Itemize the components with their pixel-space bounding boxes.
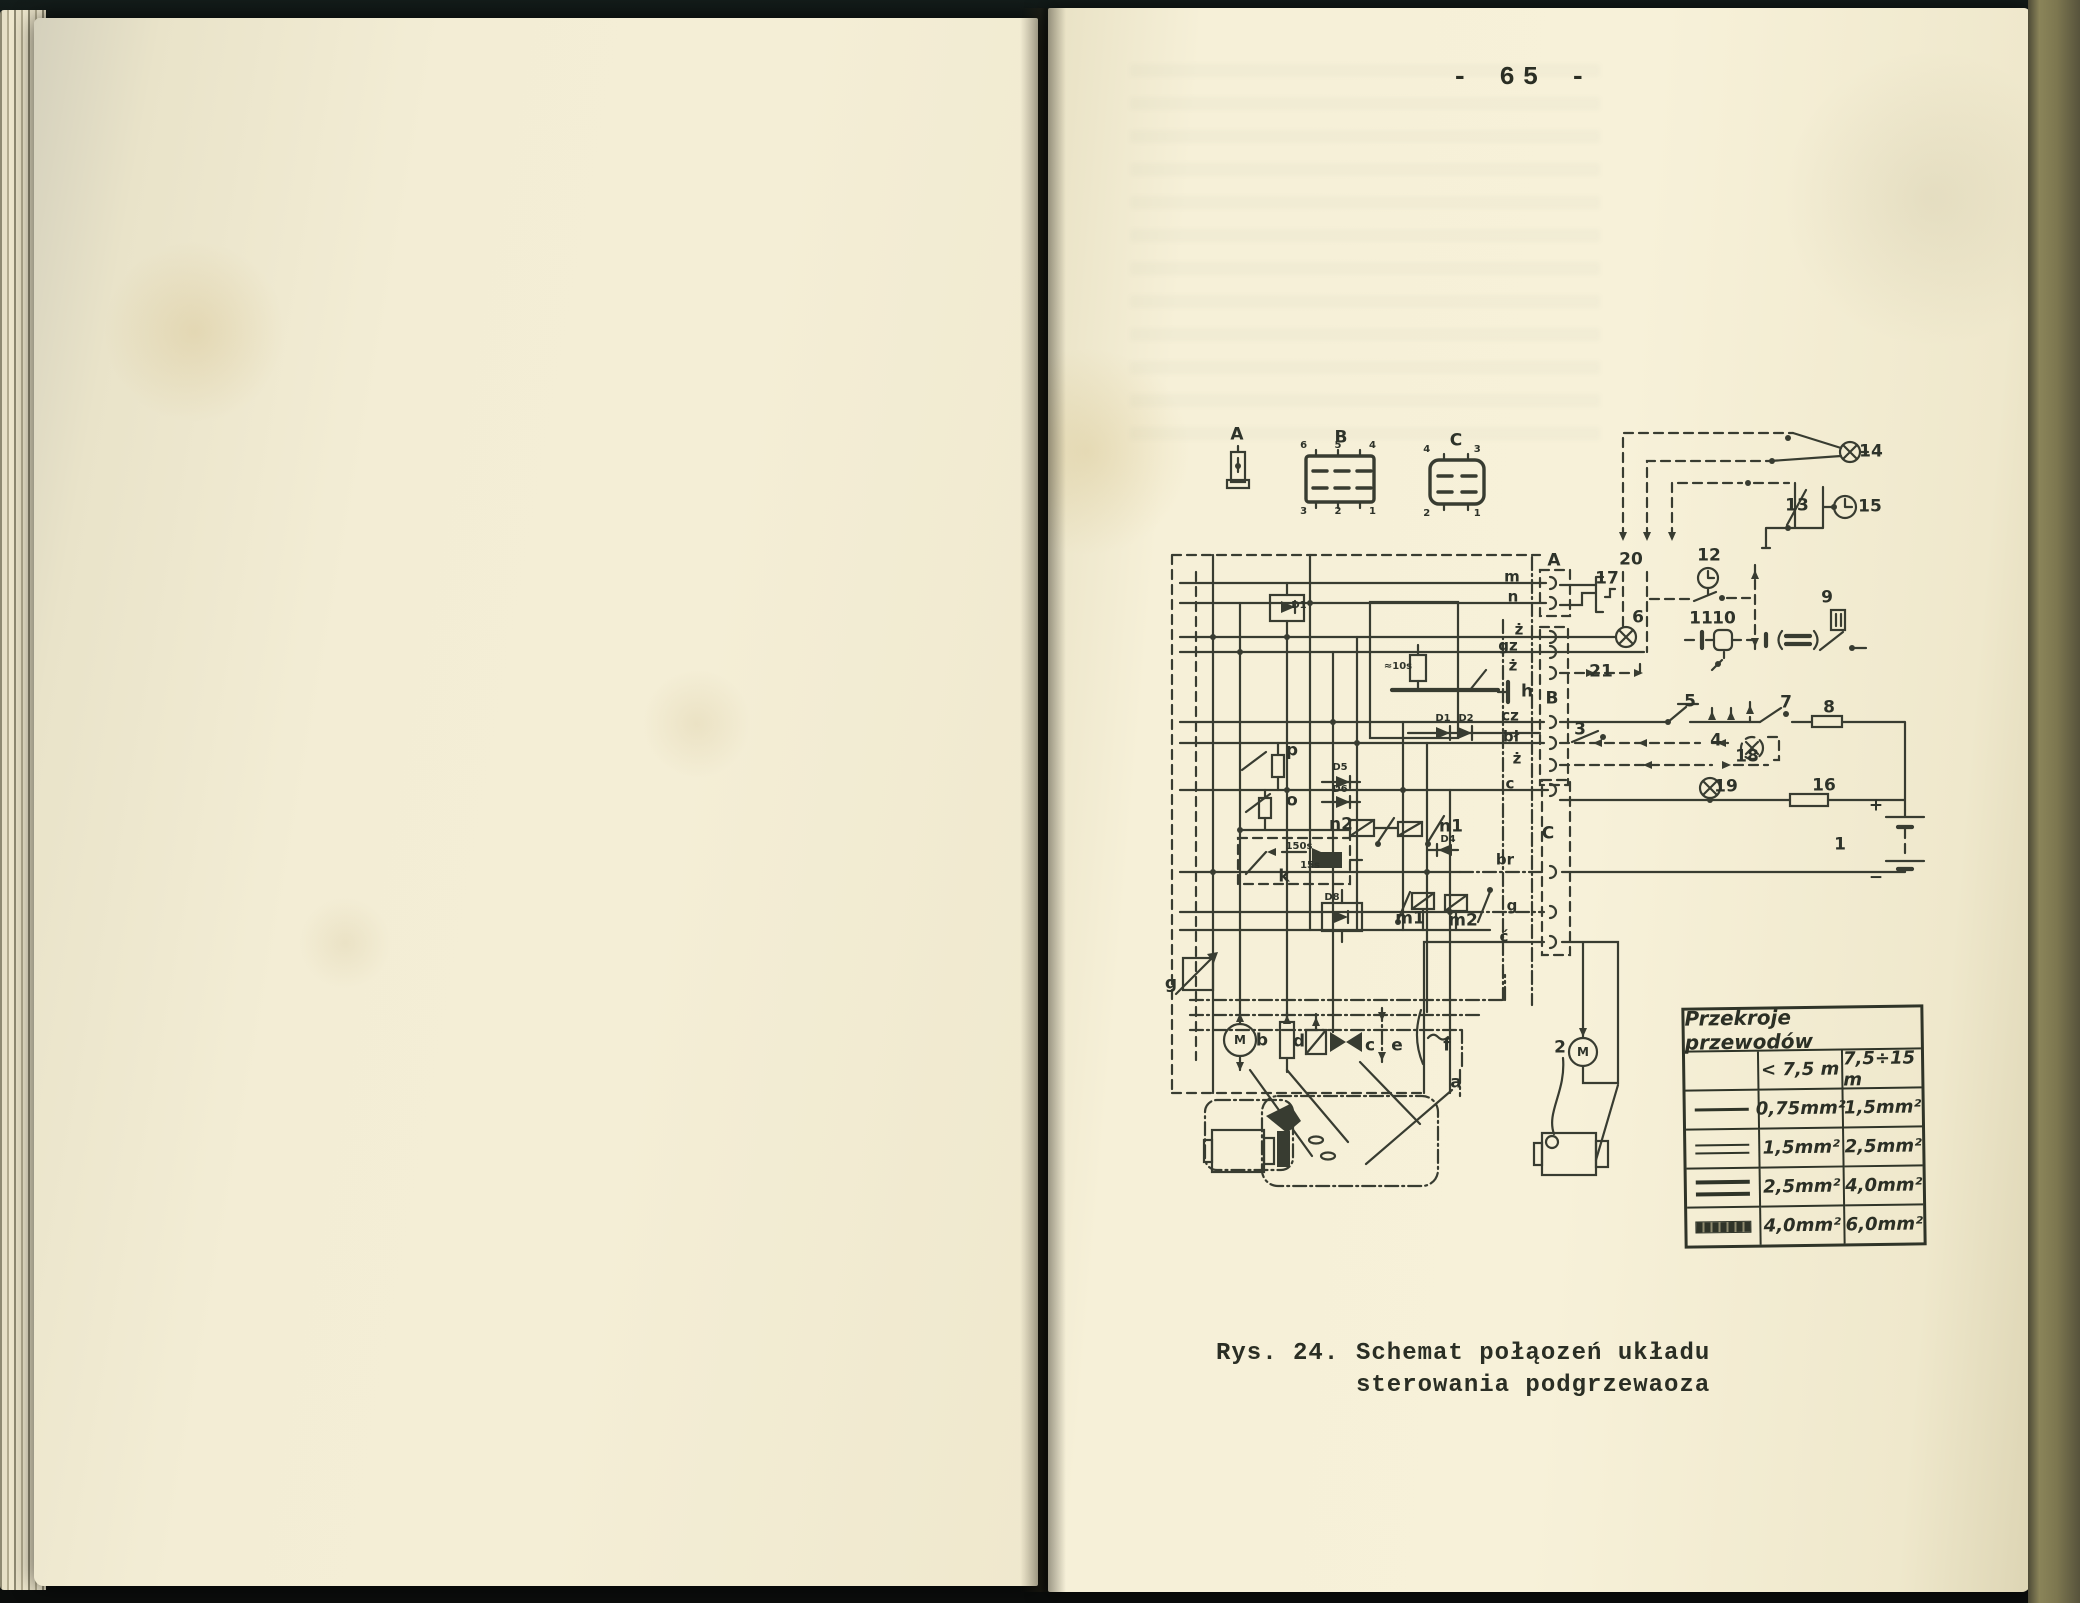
label-p: p <box>1286 743 1298 760</box>
label-switch-5: 5 <box>1684 694 1696 711</box>
label-20: 20 <box>1619 552 1643 569</box>
book-cover-edge <box>2028 0 2080 1603</box>
wire-label-g: g <box>1507 899 1518 914</box>
motor-b-letter: M <box>1234 1034 1246 1046</box>
wire-table-corner-cell <box>1685 1052 1760 1092</box>
table-row <box>1686 1130 1761 1170</box>
wire-label-gz: gz <box>1498 639 1517 654</box>
wire-label-m: m <box>1504 570 1520 585</box>
label-fuse-10: 10 <box>1712 611 1736 628</box>
label-relay-n2: n2 <box>1329 817 1353 834</box>
label-lamp-14: 14 <box>1859 444 1883 461</box>
wire-label-z2: ż <box>1509 659 1518 674</box>
table-cell: 4,0mm² <box>1761 1206 1846 1244</box>
label-relay-n1: n1 <box>1439 819 1463 836</box>
diode-d1-row-label: D1 <box>1435 714 1450 724</box>
diode-d5-label: D5 <box>1332 763 1347 773</box>
label-clock-15: 15 <box>1858 499 1882 516</box>
label-relay-m1: m1 <box>1395 911 1425 928</box>
wire-table-title: Przekroje przewodów <box>1684 1007 1921 1052</box>
fuse-8-icon <box>1812 716 1842 727</box>
fuse-10-icon <box>1714 630 1732 650</box>
label-17: 17 <box>1595 571 1619 588</box>
connector-b-icon <box>1306 456 1374 502</box>
wire-label-c2: ć <box>1500 930 1509 945</box>
timing-150s-label: 150s <box>1286 842 1313 852</box>
fuel-nozzle-icon <box>1266 1104 1301 1133</box>
label-o: o <box>1286 793 1298 810</box>
diode-d4-label: D4 <box>1440 835 1455 845</box>
wire-label-c: c <box>1506 777 1515 792</box>
wire-table-col2-header: 7,5÷15 m <box>1843 1049 1922 1089</box>
table-cell: 1,5mm² <box>1843 1088 1922 1128</box>
diode-d6-label: D6 <box>1332 785 1347 795</box>
label-pump-2: 2 <box>1554 1040 1566 1057</box>
label-21: 21 <box>1589 664 1613 681</box>
strip-a-box <box>1540 570 1570 616</box>
table-cell: 2,5mm² <box>1761 1167 1846 1207</box>
table-cell: 2,5mm² <box>1844 1127 1923 1167</box>
label-a: a <box>1450 1075 1461 1092</box>
label-battery-1: 1 <box>1834 837 1846 854</box>
wire-label-n: n <box>1508 590 1519 605</box>
pump-motor-letter: M <box>1577 1046 1589 1058</box>
table-cell: 4,0mm² <box>1845 1166 1924 1206</box>
page-number: - 65 - <box>1452 62 1594 92</box>
timing-10s-label: ≈10s <box>1384 662 1412 672</box>
wire-label-bl: bł <box>1503 730 1519 745</box>
label-fuse-16: 16 <box>1812 778 1836 795</box>
diode-d2-label: D2 <box>1458 714 1473 724</box>
label-4: 4 <box>1710 733 1722 750</box>
wire-label-z3: ż <box>1513 752 1522 767</box>
label-resistor-d: d <box>1293 1034 1305 1051</box>
legend-connector-a-label: A <box>1230 427 1243 444</box>
connector-b-pins-top: 6 5 4 <box>1300 441 1388 451</box>
connector-c-icon <box>1430 460 1484 504</box>
label-switch-7: 7 <box>1780 695 1792 712</box>
single-line-symbol <box>1695 1108 1749 1112</box>
label-f: f <box>1443 1038 1450 1055</box>
diode-d1-label: D1 <box>1291 601 1306 611</box>
label-lamp-19: 19 <box>1714 779 1738 796</box>
table-cell: 0,75mm² <box>1759 1089 1844 1129</box>
connector-9-icon <box>1831 610 1845 630</box>
connector-b-pins-bottom: 3 2 1 <box>1300 507 1388 517</box>
strip-b-label: B <box>1546 691 1559 708</box>
strip-a-label: A <box>1547 553 1560 570</box>
table-cell: 1,5mm² <box>1760 1128 1845 1168</box>
resistor-d-icon <box>1280 1022 1294 1058</box>
figure-caption-line2: sterowania podgrzewaoza <box>1356 1372 1710 1399</box>
fuel-pump-motor-icon <box>1542 1133 1596 1175</box>
thick-hatched-bar-symbol <box>1695 1220 1751 1233</box>
table-row <box>1686 1091 1761 1131</box>
battery-minus-sign: − <box>1869 870 1883 887</box>
label-11: 11 <box>1689 611 1713 628</box>
strip-c-box <box>1542 780 1570 955</box>
text-bleedthrough <box>1130 60 1600 440</box>
wire-label-br: br <box>1496 853 1514 868</box>
label-fuse-8: 8 <box>1823 700 1835 717</box>
label-lamp-6: 6 <box>1632 610 1644 627</box>
label-e: e <box>1391 1038 1403 1055</box>
label-valve-c: c <box>1365 1038 1375 1055</box>
table-row <box>1687 1208 1762 1246</box>
heater-motor-icon <box>1212 1130 1264 1172</box>
wire-label-cz: cz <box>1501 709 1519 724</box>
figure-caption-prefix: Rys. 24. <box>1216 1340 1339 1367</box>
label-h: h <box>1521 684 1533 701</box>
label-relay-m2: m2 <box>1448 913 1478 930</box>
timing-15s-label: 15s <box>1300 861 1320 871</box>
battery-plus-sign: + <box>1869 798 1883 815</box>
label-switch-3: 3 <box>1574 722 1586 739</box>
connector-c-pins-bottom: 2 1 <box>1423 509 1500 519</box>
wire-table-col1-header: < 7,5 m <box>1759 1050 1844 1090</box>
label-motor-b: b <box>1256 1033 1268 1050</box>
connector-c-pins-top: 4 3 <box>1423 445 1500 455</box>
figure-caption-line1: Schemat połąozeń układu <box>1356 1340 1710 1367</box>
book-gutter <box>1020 8 1066 1592</box>
diode-d8-label: D8 <box>1324 893 1339 903</box>
double-line-symbol <box>1695 1143 1749 1154</box>
table-cell: 6,0mm² <box>1845 1205 1924 1243</box>
fuse-16-icon <box>1790 794 1828 806</box>
label-relay-k: k <box>1278 869 1289 886</box>
label-connector-9: 9 <box>1821 590 1833 607</box>
double-line-bold-symbol <box>1696 1179 1750 1196</box>
label-g: g <box>1165 976 1177 993</box>
label-switch-13: 13 <box>1785 498 1809 515</box>
wire-label-z1: ż <box>1515 623 1524 638</box>
table-row <box>1687 1169 1762 1209</box>
label-clock-12: 12 <box>1697 548 1721 565</box>
strip-c-label: C <box>1542 826 1554 843</box>
left-blank-page <box>34 18 1038 1586</box>
label-lamp-18: 18 <box>1735 749 1759 766</box>
wire-cross-section-table: Przekroje przewodów < 7,5 m 7,5÷15 m 0,7… <box>1681 1004 1926 1248</box>
fuse-p-icon <box>1272 755 1284 777</box>
